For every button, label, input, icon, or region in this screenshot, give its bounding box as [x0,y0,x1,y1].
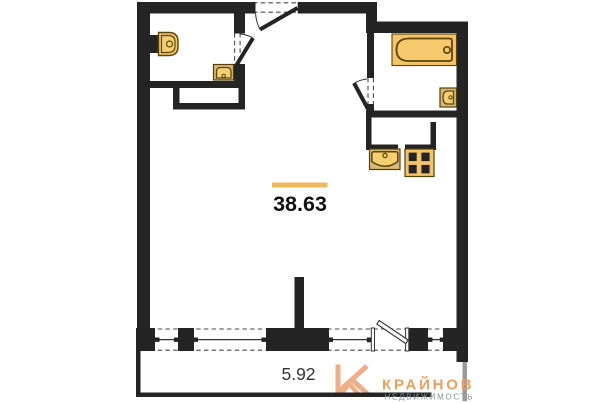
svg-text:НЕДВИЖИМОСТЬ: НЕДВИЖИМОСТЬ [385,393,475,402]
svg-text:5.92: 5.92 [281,364,315,384]
svg-text:38.63: 38.63 [273,192,327,216]
svg-text:КРАЙНОВ: КРАЙНОВ [382,376,474,394]
